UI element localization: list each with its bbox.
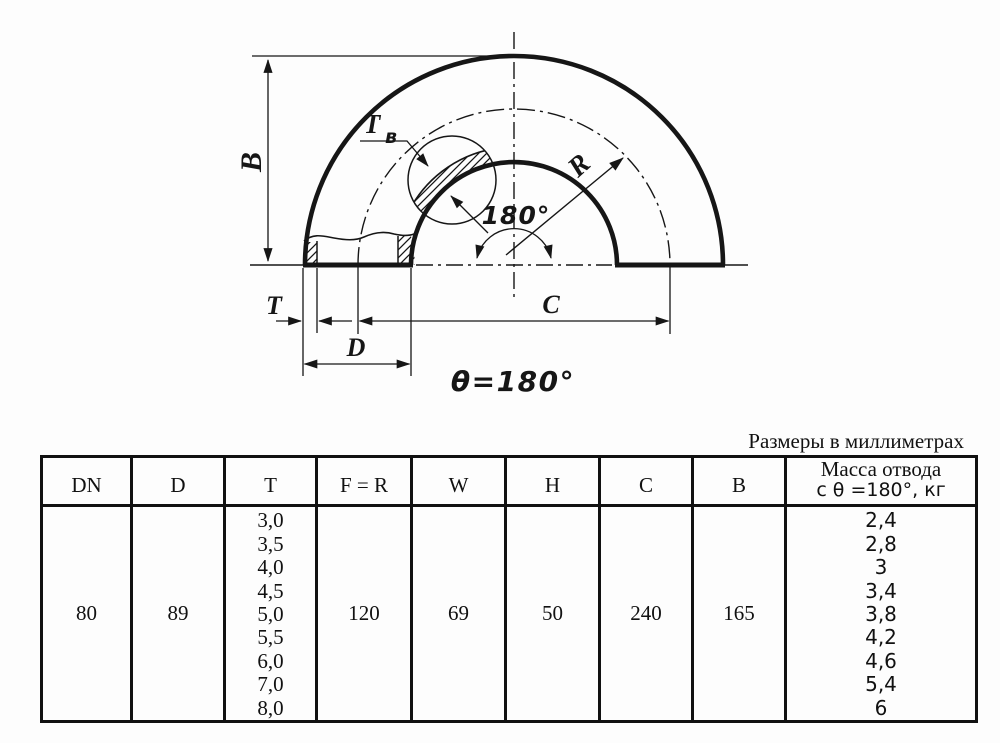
dimensions-table: DN D T F = R W H C B Масса отвода с θ =1… bbox=[40, 455, 978, 723]
cell-b: 165 bbox=[694, 507, 787, 720]
table-body-row: 80 89 3,0 3,5 4,0 4,5 5,0 5,5 6,0 7,0 8,… bbox=[43, 507, 975, 720]
cell-w: 69 bbox=[413, 507, 507, 720]
mass-value: 3,8 bbox=[865, 603, 897, 626]
col-header-t: T bbox=[226, 458, 318, 504]
c-dimension-label: C bbox=[542, 290, 560, 319]
technical-drawing-page: T в B R 180° T C D θ=180° Размеры в милл… bbox=[0, 0, 1000, 743]
mass-value: 5,4 bbox=[865, 673, 897, 696]
angle-arc-label: 180° bbox=[482, 201, 551, 230]
mass-value: 6 bbox=[875, 697, 888, 720]
mass-value: 4,6 bbox=[865, 650, 897, 673]
elbow-drawing: T в B R 180° T C D θ=180° bbox=[0, 0, 1000, 428]
b-dimension-label: B bbox=[235, 152, 268, 173]
t-value: 4,5 bbox=[257, 580, 283, 603]
t-wall-sub-label: в bbox=[385, 126, 397, 148]
table-header-row: DN D T F = R W H C B Масса отвода с θ =1… bbox=[43, 458, 975, 507]
col-header-w: W bbox=[413, 458, 507, 504]
t-value: 4,0 bbox=[257, 556, 283, 579]
mass-value: 3 bbox=[875, 556, 888, 579]
theta-note: θ=180° bbox=[451, 365, 575, 398]
cell-t-values: 3,0 3,5 4,0 4,5 5,0 5,5 6,0 7,0 8,0 bbox=[226, 507, 318, 720]
col-header-b: B bbox=[694, 458, 787, 504]
t-value: 3,0 bbox=[257, 509, 283, 532]
t-value: 5,5 bbox=[257, 626, 283, 649]
cell-d: 89 bbox=[133, 507, 226, 720]
mass-value: 2,4 bbox=[865, 509, 897, 532]
t-wall-label: T bbox=[364, 109, 382, 139]
cell-dn: 80 bbox=[43, 507, 133, 720]
col-header-mass: Масса отвода с θ =180°, кг bbox=[787, 458, 975, 504]
t-value: 8,0 bbox=[257, 697, 283, 720]
col-header-c: C bbox=[601, 458, 694, 504]
t-value: 5,0 bbox=[257, 603, 283, 626]
cell-h: 50 bbox=[507, 507, 601, 720]
col-header-f-r: F = R bbox=[318, 458, 413, 504]
mass-header-line1: Масса отвода bbox=[821, 459, 942, 480]
mass-value: 4,2 bbox=[865, 626, 897, 649]
d-dimension-label: D bbox=[346, 333, 366, 362]
t-value: 6,0 bbox=[257, 650, 283, 673]
col-header-dn: DN bbox=[43, 458, 133, 504]
mass-header-line2: с θ =180°, кг bbox=[816, 480, 945, 501]
t-value: 7,0 bbox=[257, 673, 283, 696]
col-header-h: H bbox=[507, 458, 601, 504]
cell-f-r: 120 bbox=[318, 507, 413, 720]
mass-value: 3,4 bbox=[865, 580, 897, 603]
units-caption: Размеры в миллиметрах bbox=[40, 429, 964, 454]
t-value: 3,5 bbox=[257, 533, 283, 556]
t-dimension-label: T bbox=[266, 291, 283, 320]
cell-mass-values: 2,4 2,8 3 3,4 3,8 4,2 4,6 5,4 6 bbox=[787, 507, 975, 720]
col-header-d: D bbox=[133, 458, 226, 504]
mass-value: 2,8 bbox=[865, 533, 897, 556]
cell-c: 240 bbox=[601, 507, 694, 720]
